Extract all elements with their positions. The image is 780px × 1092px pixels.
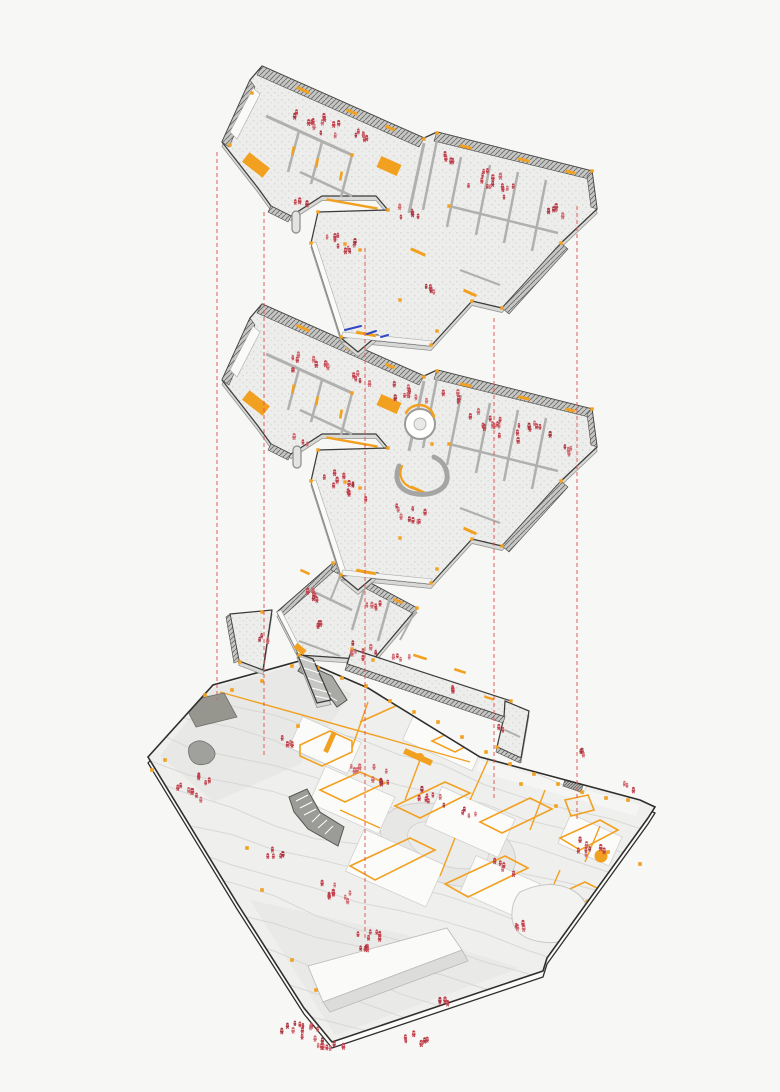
orange-node	[386, 446, 389, 449]
person-figure	[623, 781, 626, 787]
person-figure	[309, 1024, 312, 1030]
orange-node	[435, 369, 438, 372]
orange-node	[435, 131, 438, 134]
person-figure	[632, 787, 636, 793]
site-plan	[148, 660, 655, 1092]
stair-drum	[414, 418, 426, 430]
orange-node	[519, 782, 523, 786]
orange-node	[429, 343, 432, 346]
orange-node	[430, 442, 433, 445]
orange-node	[398, 298, 401, 301]
person-figure	[408, 654, 411, 659]
orange-node	[290, 958, 294, 962]
person-figure	[425, 1037, 429, 1043]
exploded-axonometric-stage	[0, 0, 780, 1092]
orange-node	[260, 679, 264, 683]
orange-node	[495, 745, 498, 748]
orange-node	[350, 391, 353, 394]
orange-accent	[454, 668, 466, 674]
orange-node	[358, 486, 361, 489]
orange-node	[163, 758, 167, 762]
orange-node	[316, 448, 319, 451]
orange-node	[339, 335, 342, 338]
person-figure	[317, 1043, 320, 1048]
orange-node	[554, 804, 558, 808]
orange-node	[316, 210, 319, 213]
orange-node	[638, 862, 642, 866]
person-figure	[412, 1030, 416, 1037]
orange-node	[435, 567, 438, 570]
orange-node	[309, 241, 312, 244]
person-figure	[280, 1028, 284, 1035]
orange-node	[314, 988, 318, 992]
person-figure	[325, 1044, 328, 1050]
orange-node	[398, 536, 401, 539]
orange-node	[435, 329, 438, 332]
orange-node	[556, 782, 560, 786]
page: { "canvas": {"width": 780, "height": 109…	[0, 0, 780, 1092]
person-figure	[329, 1045, 332, 1051]
orange-node	[532, 772, 536, 776]
person-figure	[396, 653, 399, 658]
orange-node	[150, 768, 154, 772]
orange-node	[436, 720, 440, 724]
orange-node	[415, 606, 418, 609]
orange-node	[470, 537, 473, 540]
person-figure	[293, 1021, 296, 1026]
orange-node	[290, 664, 294, 668]
axonometric-diagram	[0, 0, 780, 1092]
orange-node	[260, 888, 264, 892]
person-figure	[582, 752, 585, 758]
orange-node	[559, 241, 562, 244]
orange-node	[500, 544, 503, 547]
orange-node	[412, 710, 416, 714]
orange-node	[350, 153, 353, 156]
person-figure	[392, 654, 396, 660]
orange-node	[343, 480, 346, 483]
person-figure	[626, 783, 629, 788]
orange-node	[358, 248, 361, 251]
orange-node	[559, 479, 562, 482]
orange-node	[339, 573, 342, 576]
orange-node	[470, 299, 473, 302]
orange-node	[238, 660, 241, 663]
person-figure	[321, 1037, 325, 1043]
orange-node	[228, 143, 231, 146]
orange-node	[509, 699, 512, 702]
orange-accent	[413, 654, 427, 661]
orange-node	[230, 688, 234, 692]
orange-node	[590, 407, 593, 410]
lift-capsule	[292, 211, 300, 233]
orange-node	[460, 735, 464, 739]
orange-node	[606, 850, 610, 854]
orange-node	[260, 610, 263, 613]
orange-node	[604, 796, 608, 800]
orange-node	[371, 658, 374, 661]
orange-node	[250, 91, 253, 94]
person-figure	[300, 1027, 304, 1034]
orange-node	[343, 242, 346, 245]
person-figure	[497, 724, 501, 730]
orange-node	[508, 762, 512, 766]
orange-node	[388, 699, 392, 703]
orange-node	[422, 375, 425, 378]
orange-node	[297, 653, 300, 656]
person-figure	[300, 1034, 303, 1040]
orange-node	[590, 169, 593, 172]
person-figure	[291, 1027, 295, 1034]
orange-node	[386, 208, 389, 211]
orange-node	[500, 306, 503, 309]
orange-node	[580, 790, 584, 794]
person-figure	[298, 1021, 301, 1027]
orange-node	[447, 204, 450, 207]
terrace-path	[512, 884, 586, 942]
person-figure	[341, 1043, 345, 1050]
person-figure	[313, 1035, 317, 1041]
orange-node	[626, 798, 630, 802]
orange-node	[447, 442, 450, 445]
orange-node	[296, 724, 300, 728]
person-figure	[404, 1038, 407, 1043]
orange-node	[245, 846, 249, 850]
orange-node	[429, 581, 432, 584]
orange-node	[309, 479, 312, 482]
orange-accent	[300, 569, 310, 575]
person-figure	[286, 1023, 290, 1029]
orange-node	[331, 561, 334, 564]
orange-node	[484, 750, 488, 754]
orange-node	[422, 137, 425, 140]
orange-node	[340, 676, 344, 680]
lift-capsule	[293, 446, 301, 468]
person-figure	[399, 657, 402, 662]
orange-node	[203, 693, 207, 697]
